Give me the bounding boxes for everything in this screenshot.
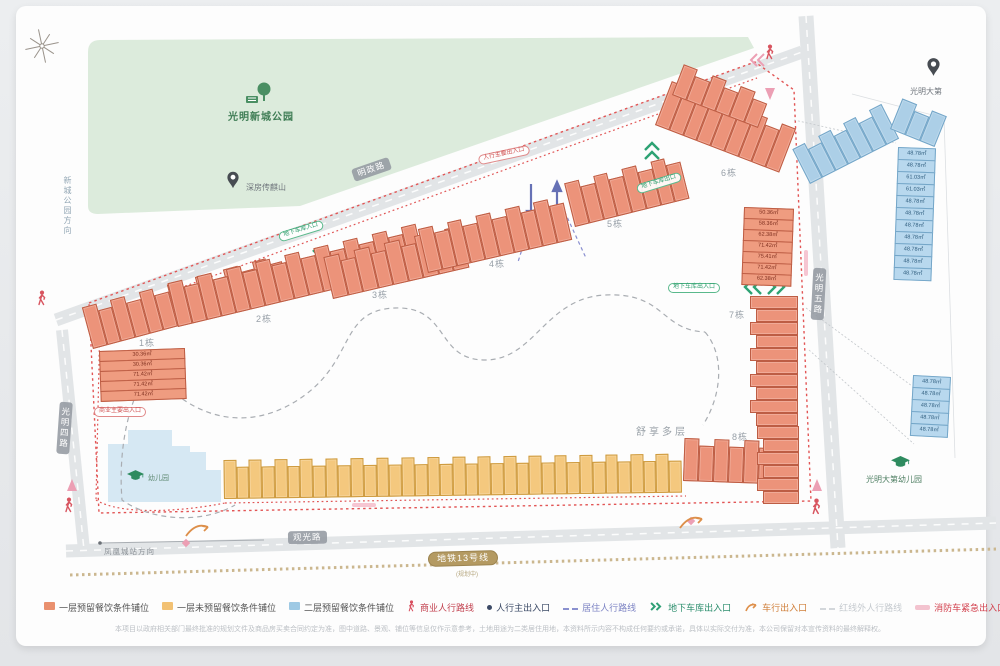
legend-label: 二层预留餐饮条件铺位 (304, 601, 394, 614)
building-strip-vertical (750, 296, 798, 426)
shop-cell (452, 457, 465, 496)
legend-label: 居住人行路线 (582, 601, 636, 614)
shop-cell (756, 335, 798, 348)
garage-inout: 地下车库出入口 (668, 283, 720, 293)
swatch-icon (44, 602, 55, 612)
shop-cell (656, 454, 669, 493)
dashes-icon (563, 602, 578, 612)
shop-cell (630, 454, 643, 493)
shop-cell (414, 464, 427, 496)
direction-park-label: 新城公园方向 (62, 176, 73, 236)
legend-label: 一层未预留餐饮条件铺位 (177, 601, 276, 614)
road-guangsi: 光明四路 (56, 402, 72, 455)
shop-cell (402, 457, 415, 496)
shop-cell (478, 456, 491, 495)
shop-cell (763, 491, 799, 504)
building-strip-vertical (757, 426, 799, 504)
biz-entry: 商业主要出入口 (94, 407, 146, 417)
shop-cell (756, 413, 798, 426)
shop-cell (440, 464, 453, 496)
building-label: 1栋 (139, 336, 155, 349)
shop-cell (713, 439, 729, 482)
building-label: 3栋 (372, 288, 388, 301)
swatch-icon (289, 602, 300, 612)
legend: 一层预留餐饮条件铺位一层未预留餐饮条件铺位二层预留餐饮条件铺位商业人行路线人行主… (44, 599, 958, 615)
legend-item: 一层未预留餐饮条件铺位 (162, 601, 276, 614)
building-strip (890, 98, 947, 147)
shop-area-row: 48.78㎡ (893, 267, 931, 281)
shop-cell (728, 447, 744, 484)
legend-item: 消防车紧急出入口 (915, 601, 1000, 614)
shop-cell (756, 309, 798, 322)
shop-cell (750, 322, 798, 335)
shop-cell (338, 465, 351, 497)
person-icon (407, 599, 416, 615)
shop-cell (618, 461, 631, 493)
shop-cell (274, 459, 287, 498)
site-pin-label: 深房传麒山 (246, 182, 286, 193)
shop-cell (376, 458, 389, 497)
building-strip (564, 155, 689, 227)
shop-cell (750, 400, 798, 413)
road-mingzheng: 明政路 (351, 157, 392, 181)
shop-area-row: 62.38㎡ (741, 273, 791, 287)
shop-cell (313, 466, 326, 498)
shop-cell (516, 463, 529, 495)
metro-line: 地铁13号线 (428, 550, 498, 567)
shop-cell (427, 457, 440, 496)
shop-stack: 50.36㎡58.36㎡62.38㎡71.42㎡75.41㎡71.42㎡62.3… (741, 208, 794, 287)
shop-cell (580, 455, 593, 494)
shop-cell (567, 462, 580, 494)
metro-planning-note: (规划中) (456, 569, 478, 578)
building-label: 8栋 (732, 430, 748, 443)
building-strip (792, 104, 899, 184)
shop-cell (605, 454, 618, 493)
shop-cell (389, 465, 402, 497)
shop-cell (643, 461, 656, 493)
legend-label: 车行出入口 (762, 601, 807, 614)
shop-cell (465, 463, 478, 495)
curve-arrow-icon (744, 601, 758, 614)
neighbor-kindergarten-label: 光明大第幼儿园 (866, 474, 922, 485)
legend-label: 地下车库出入口 (668, 601, 731, 614)
dot-icon (487, 602, 492, 612)
kindergarten-label: 幼儿园 (148, 473, 169, 483)
building-strip (223, 454, 681, 499)
legend-label: 人行主出入口 (496, 601, 550, 614)
shop-cell (236, 467, 249, 499)
shop-cell (491, 463, 504, 495)
legend-item: 人行主出入口 (487, 601, 550, 614)
legend-label: 消防车紧急出入口 (934, 601, 1000, 614)
bar-icon (915, 602, 930, 612)
shop-cell (351, 458, 364, 497)
shop-cell (750, 296, 798, 309)
legend-label: 红线外人行路线 (839, 601, 902, 614)
neighbor-pin-label: 光明大第 (910, 86, 942, 97)
shop-stack: 48.78㎡48.78㎡48.78㎡48.78㎡48.78㎡ (910, 376, 951, 438)
shop-cell (757, 478, 799, 491)
shop-cell (669, 461, 682, 493)
shop-area-row: 48.78㎡ (910, 423, 949, 438)
road-guanguang: 观光路 (288, 531, 327, 544)
main-ped-entry: 人行主要出入口 (478, 145, 531, 165)
building-label: 4栋 (489, 257, 505, 270)
dashes-icon (820, 602, 835, 612)
legend-label: 商业人行路线 (420, 601, 474, 614)
building-label: 5栋 (607, 217, 623, 230)
shop-cell (503, 456, 516, 495)
park-label: 光明新城公园 (228, 108, 294, 123)
legend-item: 居住人行路线 (563, 601, 636, 614)
shop-cell (363, 465, 376, 497)
direction-station-label: 凤凰城站方向 (104, 546, 155, 557)
shop-cell (756, 361, 798, 374)
site-plan-page: 30.36㎡30.36㎡71.42㎡71.42㎡71.42㎡50.36㎡58.3… (0, 0, 1000, 666)
legend-item: 二层预留餐饮条件铺位 (289, 601, 394, 614)
disclaimer-text: 本项目以政府相关部门最终批准的规划文件及商品房买卖合同约定为准，图中道路、景观、… (115, 624, 885, 634)
shop-cell (300, 459, 313, 498)
shop-cell (529, 456, 542, 495)
shop-stack: 48.78㎡48.78㎡61.03㎡61.03㎡48.78㎡48.78㎡48.7… (893, 148, 936, 281)
shop-cell (750, 348, 798, 361)
shop-cell (750, 374, 798, 387)
building-label: 2栋 (256, 312, 272, 325)
building-label: 7栋 (729, 308, 745, 321)
shop-cell (262, 466, 275, 498)
swatch-icon (162, 602, 173, 612)
garage-in: 地下车库入口 (278, 219, 325, 242)
shop-cell (223, 460, 236, 499)
shop-cell (763, 465, 799, 478)
shop-stack: 30.36㎡30.36㎡71.42㎡71.42㎡71.42㎡ (99, 349, 187, 402)
shop-cell (541, 462, 554, 494)
shop-cell (757, 426, 799, 439)
shop-cell (249, 459, 262, 498)
legend-item: 车行出入口 (744, 601, 807, 614)
chevrons-icon (649, 602, 664, 613)
shop-cell (554, 455, 567, 494)
shop-cell (763, 439, 799, 452)
shop-cell (698, 446, 714, 483)
shop-cell (592, 462, 605, 494)
legend-item: 商业人行路线 (407, 599, 474, 615)
multi-storey-note: 舒享多层 (636, 423, 688, 438)
shop-cell (325, 458, 338, 497)
legend-item: 地下车库出入口 (649, 601, 731, 614)
shop-cell (287, 466, 300, 498)
legend-item: 一层预留餐饮条件铺位 (44, 601, 149, 614)
shop-cell (757, 452, 799, 465)
building-label: 6栋 (721, 166, 737, 179)
shop-cell (683, 438, 699, 481)
legend-item: 红线外人行路线 (820, 601, 902, 614)
road-guangwu: 光明五路 (811, 268, 826, 321)
shop-cell (756, 387, 798, 400)
legend-label: 一层预留餐饮条件铺位 (59, 601, 149, 614)
generated-layer: 30.36㎡30.36㎡71.42㎡71.42㎡71.42㎡50.36㎡58.3… (0, 0, 1000, 666)
shop-area-row: 71.42㎡ (100, 388, 186, 402)
